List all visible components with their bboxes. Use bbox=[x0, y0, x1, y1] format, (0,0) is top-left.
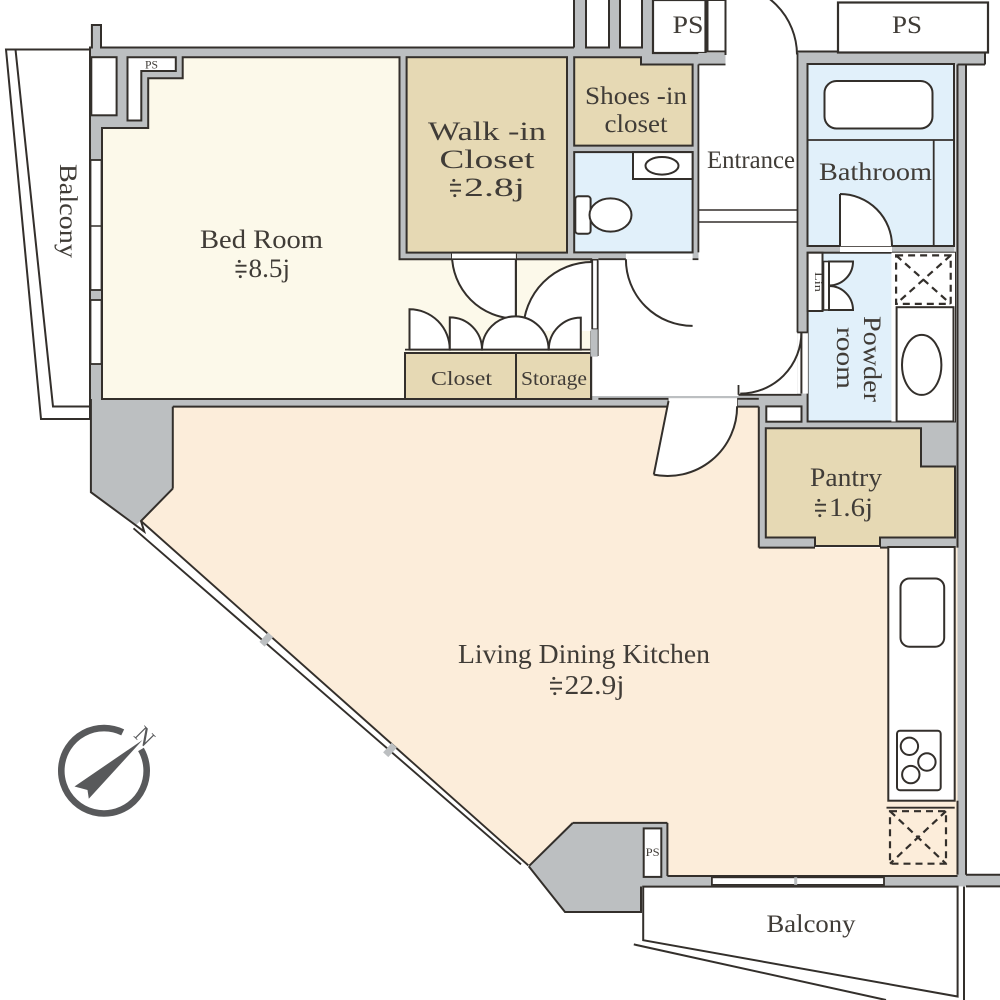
svg-text:Bathroom: Bathroom bbox=[819, 159, 933, 186]
svg-text:room: room bbox=[831, 327, 858, 390]
svg-text:Closet: Closet bbox=[431, 368, 493, 390]
svg-text:closet: closet bbox=[605, 111, 668, 138]
svg-text:8.5j: 8.5j bbox=[249, 254, 291, 283]
svg-text:Shoes -in: Shoes -in bbox=[585, 83, 688, 110]
svg-text:Balcony: Balcony bbox=[54, 164, 81, 259]
svg-text:PS: PS bbox=[892, 12, 922, 39]
svg-text:Bed Room: Bed Room bbox=[200, 225, 323, 254]
svg-text:Walk -in: Walk -in bbox=[428, 117, 546, 146]
svg-text:PS: PS bbox=[145, 58, 158, 72]
svg-text:Pantry: Pantry bbox=[810, 463, 882, 492]
svg-text:Powder: Powder bbox=[858, 316, 885, 403]
svg-text:2.8j: 2.8j bbox=[464, 173, 525, 202]
svg-text:Storage: Storage bbox=[521, 368, 587, 390]
svg-text:Entrance: Entrance bbox=[707, 147, 795, 174]
svg-text:PS: PS bbox=[673, 12, 704, 39]
svg-text:Living Dining Kitchen: Living Dining Kitchen bbox=[458, 639, 711, 669]
svg-text:Balcony: Balcony bbox=[767, 911, 857, 938]
svg-text:22.9j: 22.9j bbox=[565, 670, 625, 700]
svg-text:Lin: Lin bbox=[812, 272, 824, 293]
svg-text:1.6j: 1.6j bbox=[829, 493, 873, 522]
svg-text:PS: PS bbox=[646, 845, 660, 859]
svg-text:Closet: Closet bbox=[440, 145, 536, 174]
